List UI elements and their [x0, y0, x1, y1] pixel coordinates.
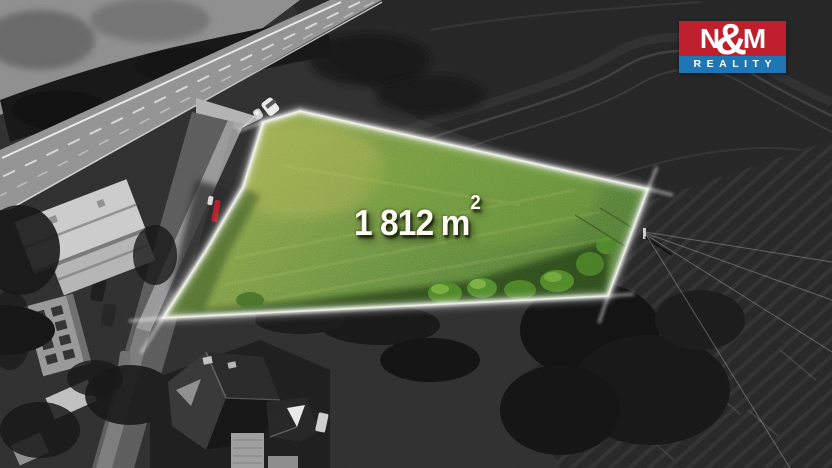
area-value: 1 812	[354, 202, 433, 243]
aerial-photo: 1 812m2 N&M REALITY	[0, 0, 832, 468]
area-superscript: 2	[470, 192, 479, 214]
realty-logo: N&M REALITY	[679, 21, 786, 73]
area-unit: m2	[441, 202, 480, 243]
logo-ampersand: &	[715, 22, 747, 56]
logo-name-box: N&M	[679, 21, 786, 56]
logo-subtitle-box: REALITY	[679, 56, 786, 73]
area-label: 1 812m2	[354, 202, 480, 244]
logo-subtitle: REALITY	[694, 56, 777, 73]
